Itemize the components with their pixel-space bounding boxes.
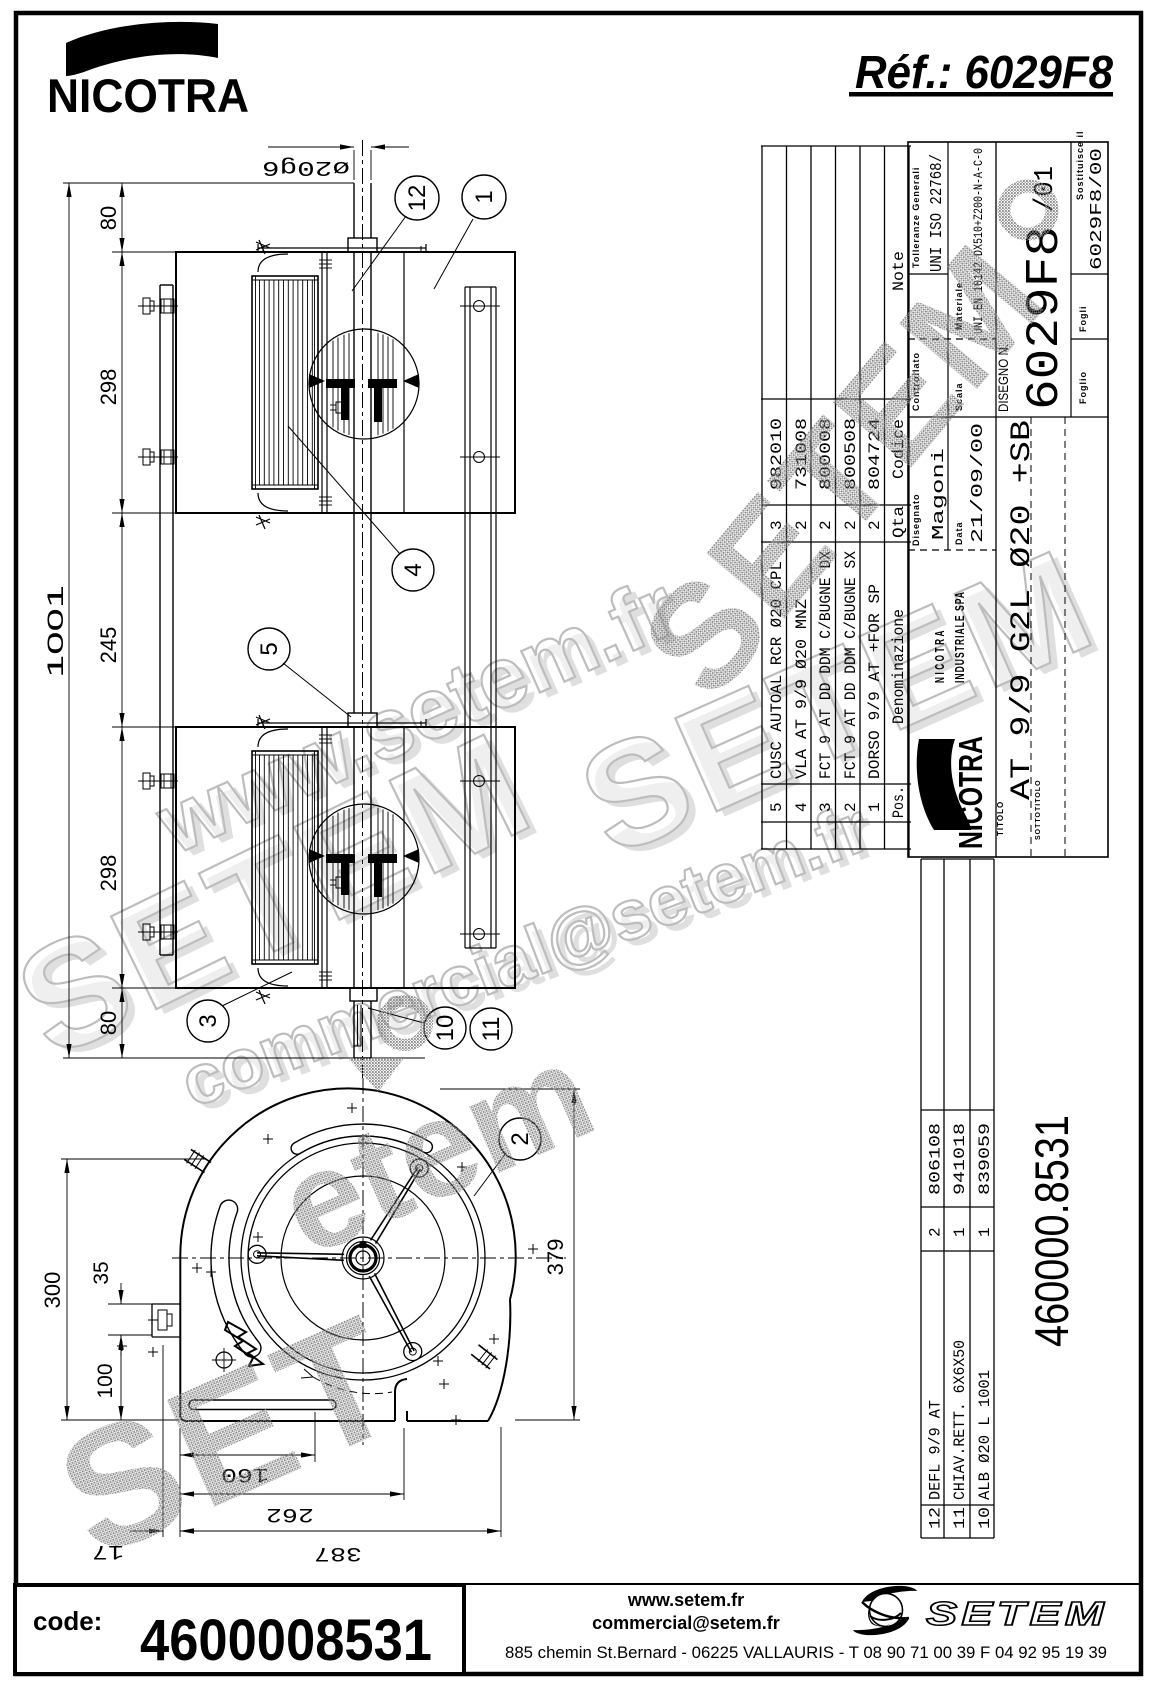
svg-text:CHIAV.RETT. 6X6X50: CHIAV.RETT. 6X6X50: [951, 1340, 969, 1500]
svg-text:Réf.: 6029F8: Réf.: 6029F8: [855, 46, 1113, 98]
svg-text:www.setem.fr: www.setem.fr: [627, 1590, 744, 1610]
svg-text:1: 1: [866, 802, 884, 812]
svg-text:Pos.: Pos.: [890, 786, 908, 818]
svg-text:NICOTRA: NICOTRA: [932, 628, 947, 683]
svg-text:10: 10: [432, 1015, 459, 1042]
svg-text:10: 10: [976, 1507, 994, 1529]
svg-text:Foglio: Foglio: [1078, 371, 1088, 404]
svg-text:839059: 839059: [976, 1123, 994, 1195]
svg-text:80: 80: [96, 206, 121, 230]
svg-text:1001: 1001: [43, 585, 68, 678]
svg-text:885 chemin St.Bernard - 0622: 885 chemin St.Bernard - 06225 VALLAURIS …: [505, 1643, 1107, 1662]
svg-text:SOTTOTITOLO: SOTTOTITOLO: [1035, 779, 1042, 840]
svg-text:12: 12: [927, 1507, 945, 1529]
svg-text:Fogli: Fogli: [1078, 306, 1088, 333]
svg-text:3: 3: [195, 1014, 222, 1027]
svg-text:1: 1: [471, 190, 498, 203]
svg-text:300: 300: [40, 1272, 65, 1309]
svg-text:2: 2: [842, 802, 860, 812]
svg-text:4: 4: [793, 802, 811, 812]
svg-text:ALB Ø20 L 1001: ALB Ø20 L 1001: [976, 1370, 994, 1500]
svg-text:1: 1: [976, 1227, 994, 1237]
svg-text:TITOLO: TITOLO: [996, 801, 1005, 836]
svg-text:Denominazione: Denominazione: [890, 609, 908, 724]
svg-text:80: 80: [96, 1011, 121, 1035]
svg-text:ø20g6: ø20g6: [262, 155, 350, 178]
svg-text:4600008531: 4600008531: [140, 1608, 432, 1673]
svg-text:SETEM: SETEM: [926, 1595, 1108, 1632]
svg-text:460000.8531: 460000.8531: [1025, 1115, 1078, 1347]
svg-text:11: 11: [951, 1507, 969, 1529]
svg-text:NICOTRA: NICOTRA: [47, 69, 249, 122]
svg-text:298: 298: [96, 369, 121, 406]
svg-text:4: 4: [400, 563, 427, 576]
svg-text:DEFL 9/9 AT: DEFL 9/9 AT: [927, 1400, 945, 1500]
svg-text:NICOTRA: NICOTRA: [952, 736, 989, 849]
svg-text:806108: 806108: [927, 1123, 945, 1195]
svg-text:AT 9/9 G2L Ø20 +SB: AT 9/9 G2L Ø20 +SB: [1007, 420, 1038, 800]
svg-text:1: 1: [951, 1227, 969, 1237]
svg-text:379: 379: [543, 1239, 568, 1276]
svg-text:Data: Data: [954, 521, 964, 545]
svg-text:Sostituisce il: Sostituisce il: [1075, 130, 1085, 200]
svg-text:35: 35: [90, 1261, 113, 1284]
svg-text:245: 245: [96, 627, 121, 664]
svg-text:12: 12: [404, 185, 431, 212]
svg-text:387: 387: [314, 1541, 362, 1564]
svg-text:6029F8/00: 6029F8/00: [1088, 148, 1107, 270]
svg-text:INDUSTRIALE SPA: INDUSTRIALE SPA: [952, 591, 967, 683]
svg-text:5: 5: [256, 642, 283, 655]
svg-text:941018: 941018: [951, 1123, 969, 1195]
svg-text:commercial@setem.fr: commercial@setem.fr: [592, 1613, 780, 1633]
svg-text:2: 2: [927, 1227, 945, 1237]
svg-text:3: 3: [817, 802, 835, 812]
svg-text:5: 5: [768, 802, 786, 812]
svg-text:code:: code:: [33, 1606, 102, 1636]
svg-text:298: 298: [96, 855, 121, 892]
svg-text:DORSO 9/9 AT +FOR SP: DORSO 9/9 AT +FOR SP: [866, 584, 884, 779]
